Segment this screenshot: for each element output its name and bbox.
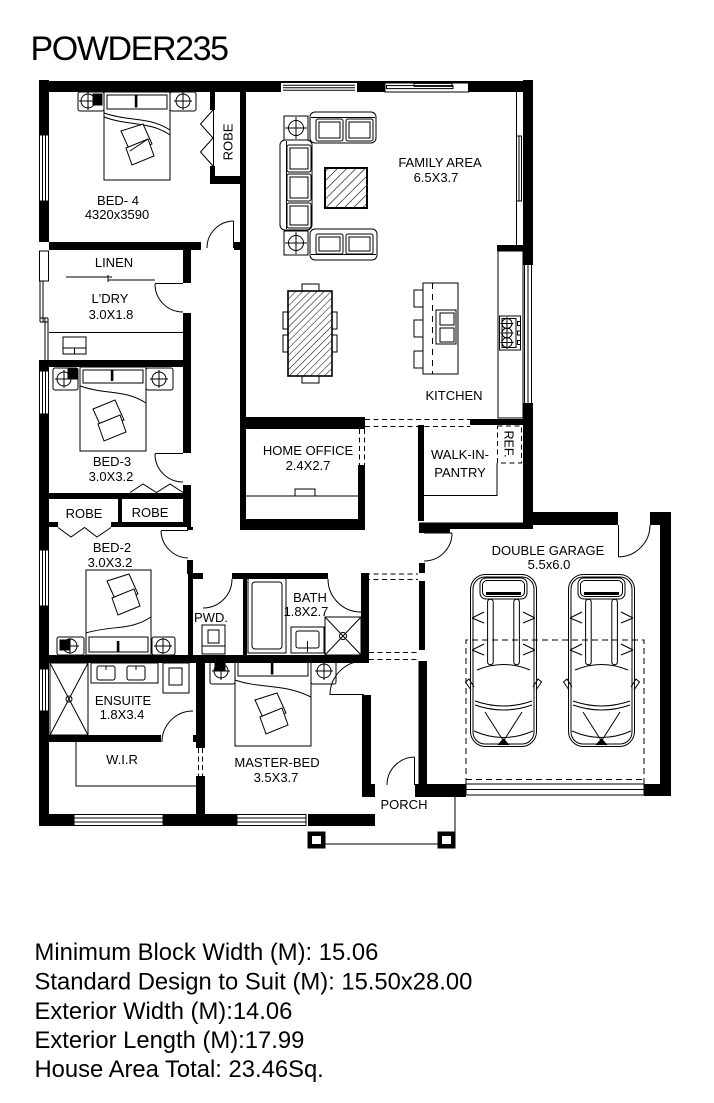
svg-text:LINEN: LINEN [95,255,133,270]
svg-text:Minimum Block Width (M): 15.06: Minimum Block Width (M): 15.06 [35,939,379,966]
svg-text:BED-2: BED-2 [93,540,131,555]
svg-text:House Area Total: 23.46Sq.: House Area Total: 23.46Sq. [35,1056,324,1083]
svg-text:BED- 4: BED- 4 [97,193,139,208]
svg-text:PORCH: PORCH [381,797,428,812]
svg-text:6.5X3.7: 6.5X3.7 [414,170,459,185]
svg-text:3.0X3.2: 3.0X3.2 [88,555,133,570]
svg-text:Exterior Length (M):17.99: Exterior Length (M):17.99 [35,1027,305,1054]
svg-text:REF.: REF. [502,430,516,457]
svg-text:L'DRY: L'DRY [92,291,129,306]
svg-text:ROBE: ROBE [221,123,236,160]
svg-text:3.5X3.7: 3.5X3.7 [254,770,299,785]
svg-text:1.8X2.7: 1.8X2.7 [284,604,329,619]
svg-text:PWD.: PWD. [194,610,228,625]
svg-text:Exterior Width (M):14.06: Exterior Width (M):14.06 [35,998,293,1025]
svg-text:POWDER235: POWDER235 [31,30,229,68]
svg-text:HOME OFFICE: HOME OFFICE [263,443,354,458]
svg-text:2.4X2.7: 2.4X2.7 [286,458,331,473]
svg-text:ENSUITE: ENSUITE [95,693,152,708]
svg-text:3.0X1.8: 3.0X1.8 [89,307,134,322]
svg-text:FAMILY AREA: FAMILY AREA [398,155,482,170]
svg-text:WALK-IN-: WALK-IN- [431,447,489,462]
svg-text:Standard Design to Suit (M): 1: Standard Design to Suit (M): 15.50x28.00 [35,969,473,996]
svg-text:MASTER-BED: MASTER-BED [234,755,319,770]
svg-text:BATH: BATH [293,590,327,605]
svg-text:4320x3590: 4320x3590 [85,207,149,222]
svg-text:1.8X3.4: 1.8X3.4 [100,707,145,722]
svg-text:DOUBLE GARAGE: DOUBLE GARAGE [492,543,605,558]
svg-text:W.I.R: W.I.R [106,752,138,767]
svg-text:ROBE: ROBE [66,506,103,521]
svg-text:KITCHEN: KITCHEN [425,388,482,403]
svg-text:PANTRY: PANTRY [434,465,486,480]
svg-text:3.0X3.2: 3.0X3.2 [89,469,134,484]
svg-text:5.5x6.0: 5.5x6.0 [528,557,571,572]
svg-text:ROBE: ROBE [132,505,169,520]
svg-text:BED-3: BED-3 [93,454,131,469]
